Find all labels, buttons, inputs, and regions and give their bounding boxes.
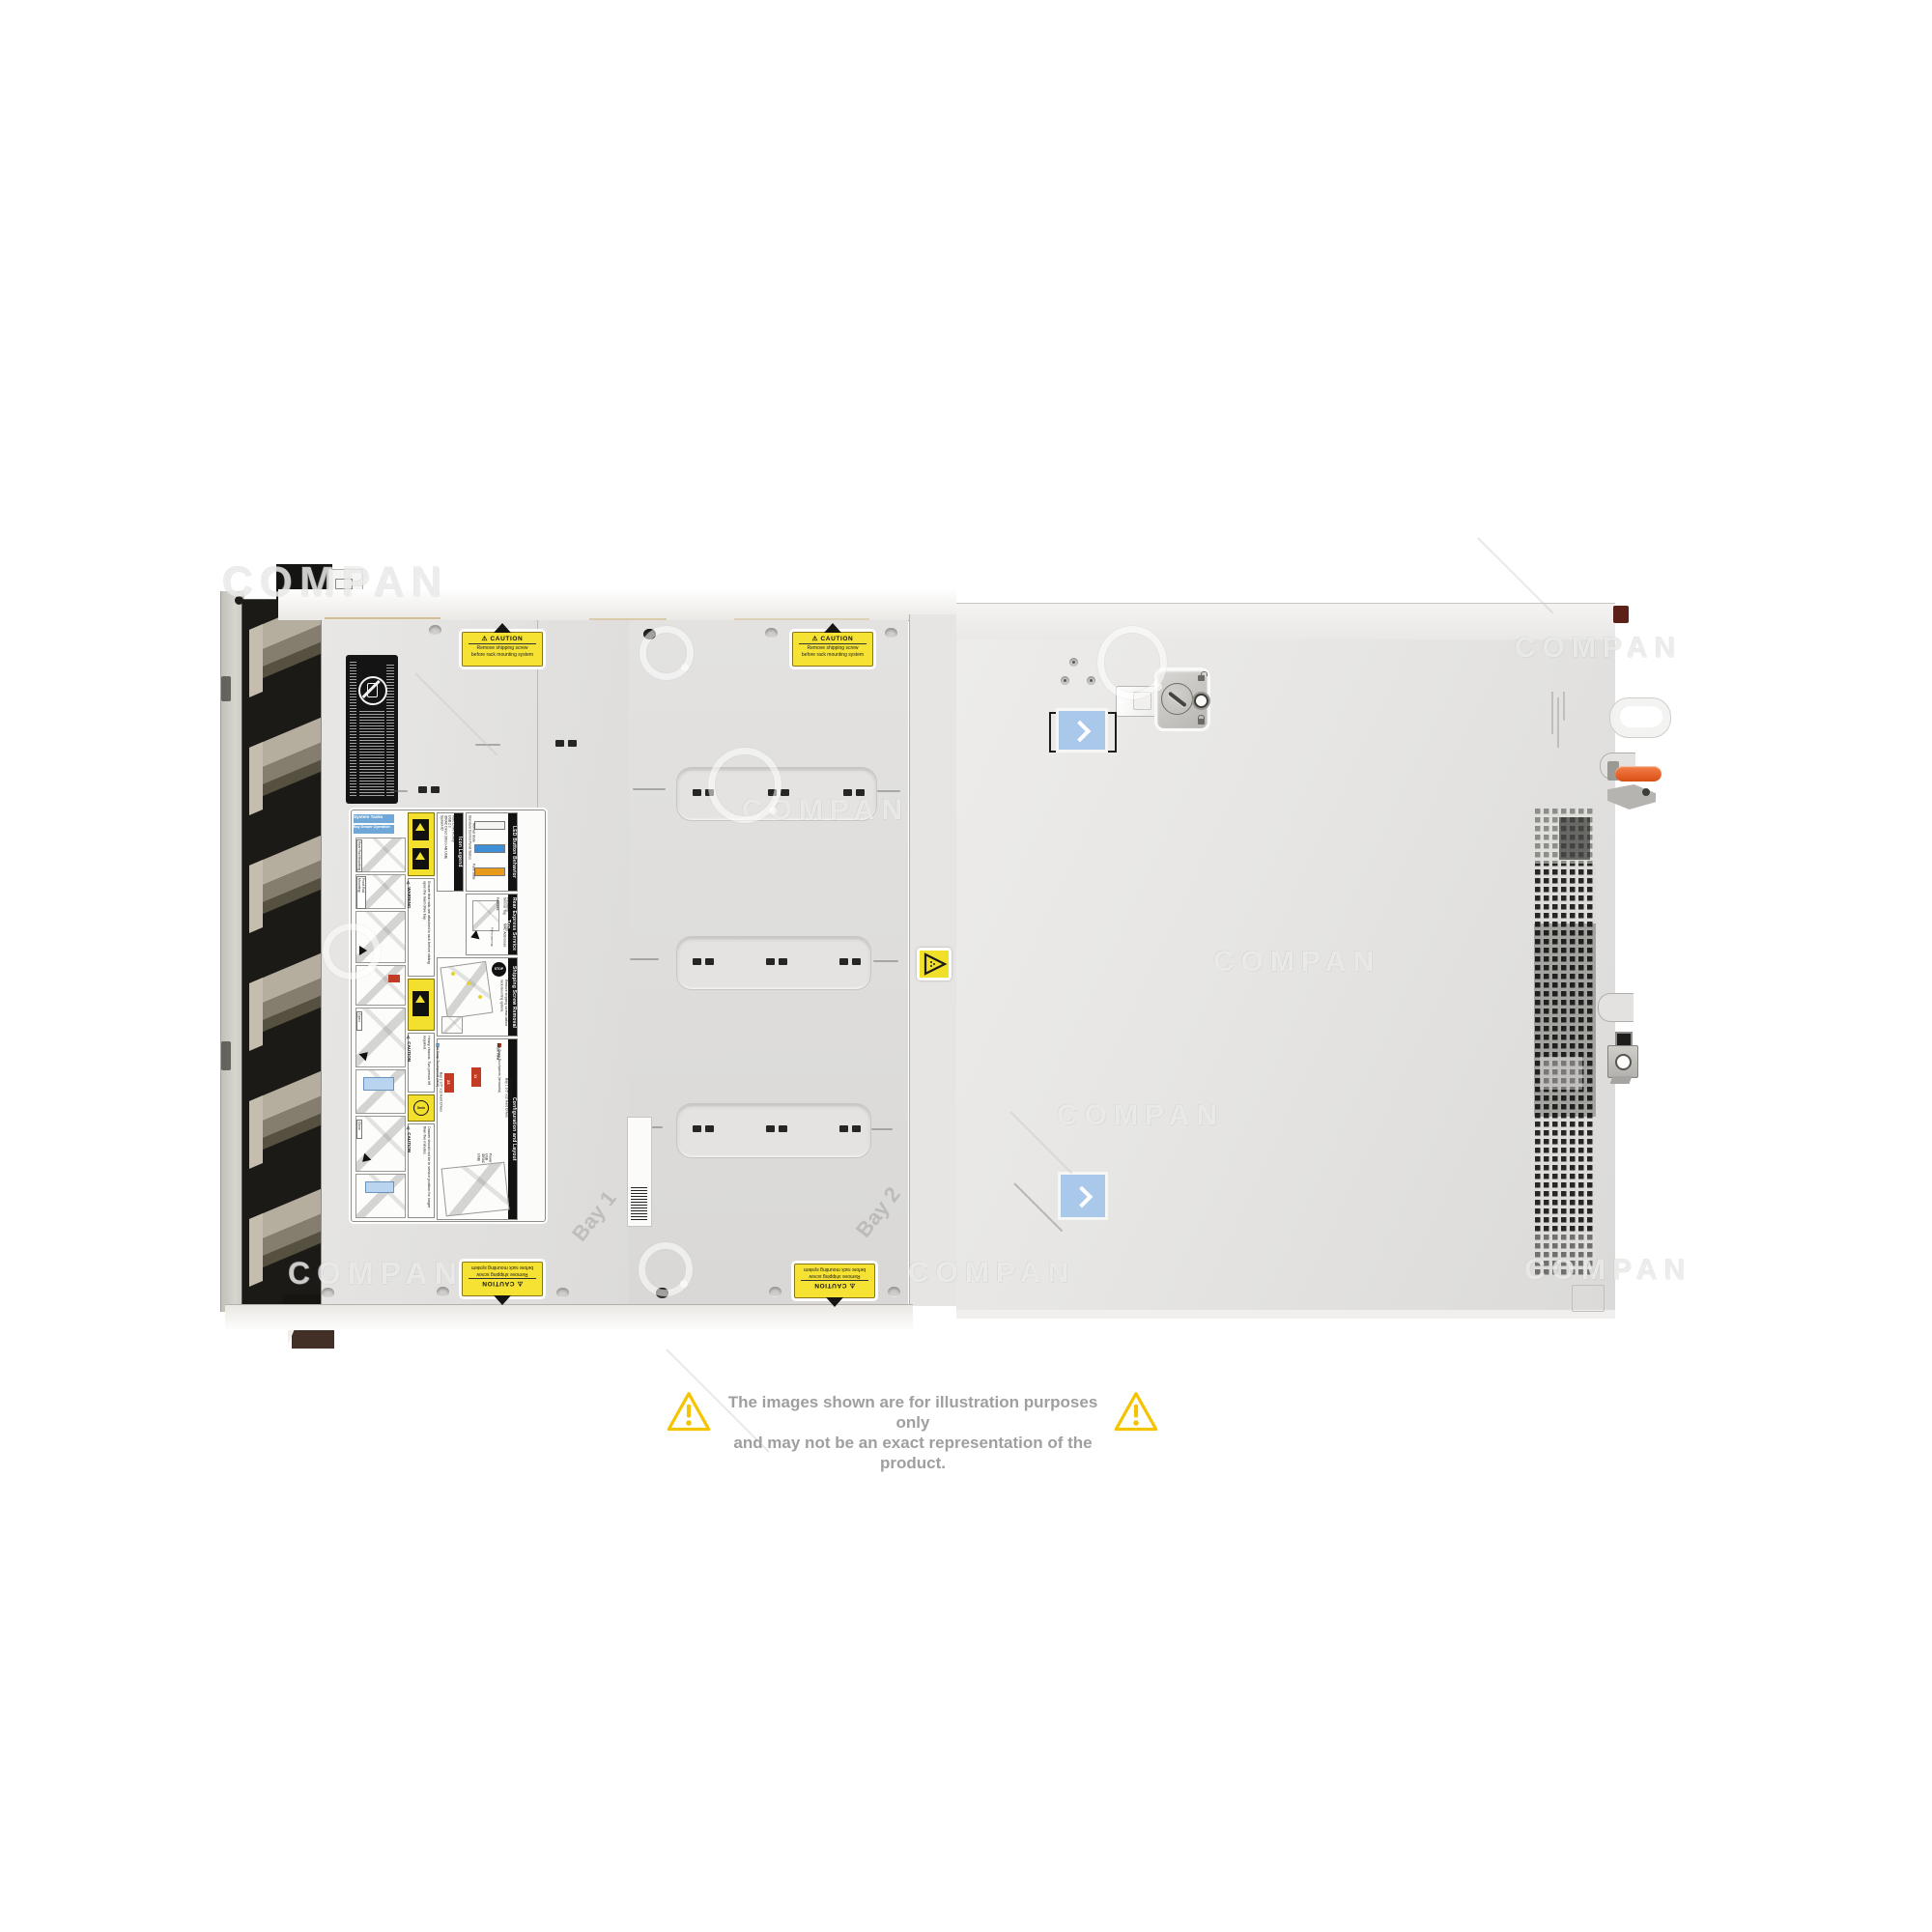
latch-plate (1607, 1045, 1638, 1078)
screw-hole (769, 1287, 781, 1297)
diagram-chassis-screws (440, 961, 493, 1019)
shipping-title: Shipping Screw Removal (508, 958, 517, 1036)
cover-keylock-plate (1157, 670, 1207, 728)
screw-hole (765, 628, 778, 639)
five-min-sticker: 5min (408, 1094, 435, 1122)
chevron-right-icon (1071, 1186, 1094, 1208)
caution-line1: Remove shipping screw (463, 1271, 542, 1278)
caution-drawer-box: ⚠ CAUTION Drawer should not be in servic… (408, 1123, 435, 1218)
light-bar-label: System ID/Status Light Bar (508, 1078, 512, 1161)
warning-triangle-icon (1114, 1389, 1158, 1435)
shipping-screw-box: Shipping Screw Removal STOP Remove shipp… (437, 957, 518, 1037)
feature-item: Express Service Code (505, 923, 514, 952)
bay2-label: Bay 2 3.5" x12 Hard Drives (439, 1072, 442, 1161)
caution-sticker-bottom-left: ⚠ CAUTION Remove shipping screw before r… (462, 1262, 543, 1296)
diagram-blue-drawer-fill (365, 1181, 394, 1193)
cover-release-slider (1116, 686, 1156, 717)
caution-line2: before rack mounting system (793, 652, 872, 659)
caution-title: ⚠ CAUTION (801, 1280, 868, 1290)
service-info-label: System Tasks Bay Drawer Operation Rear R… (351, 810, 546, 1222)
caution-title: ⚠ CAUTION (406, 1126, 411, 1152)
bracket-mark-icon (1108, 712, 1117, 753)
pointer-arrow-icon (824, 623, 841, 633)
screw-hole (437, 1287, 449, 1297)
scratch-mark (475, 744, 500, 746)
rail-smudge (221, 676, 231, 701)
legend-item: Hard Drive Activity (451, 815, 455, 887)
screw-hole (885, 628, 897, 639)
regulatory-fine-print (386, 665, 394, 796)
yellow-triangle-sticker (917, 948, 952, 980)
caution-text: Heavy chassis. Two person lift required. (417, 1036, 431, 1088)
caution-title: ⚠ CAUTION (406, 1036, 411, 1062)
rivet (1061, 676, 1069, 685)
embossed-mark (1557, 697, 1559, 748)
regulatory-fine-print (359, 709, 384, 796)
step-label: Front Rail Mounting (356, 876, 366, 909)
unlock-icon (1198, 675, 1205, 681)
pointer-arrow-icon (826, 1297, 843, 1307)
bay2-drive-grid: 121314151617181920212223 (443, 1072, 476, 1157)
caution-title: ⚠ CAUTION (469, 635, 536, 644)
regulatory-label (346, 655, 398, 804)
caution-text: Drawer should not be in service position… (417, 1126, 431, 1213)
warning-title: ⚠ WARNING (406, 881, 411, 908)
disclaimer-line2: and may not be an exact representation o… (715, 1433, 1111, 1473)
bottom-edge-lip-right (956, 1310, 1615, 1319)
screw-hole (888, 1287, 900, 1297)
stop-icon: STOP (492, 962, 506, 977)
step-label: Rear Rail Mounting (356, 839, 362, 872)
disclaimer-line1: The images shown are for illustration pu… (715, 1392, 1111, 1433)
screw-hole (429, 625, 441, 636)
caution-sticker-top-mid: ⚠ CAUTION Remove shipping screw before r… (792, 632, 873, 667)
product-photo-canvas: ⚠ CAUTION Remove shipping screw before r… (0, 0, 1932, 1932)
caution-line1: Remove shipping screw (795, 1273, 874, 1280)
recessed-handle-row (676, 936, 871, 990)
rivet (1087, 676, 1095, 685)
edge-detail-square (1572, 1285, 1605, 1312)
latch-foot (1610, 1076, 1633, 1084)
diagram-drawer-blue (355, 1069, 406, 1114)
arrow-icon (359, 946, 367, 955)
scratch-mark (871, 1128, 893, 1130)
diagram-drawer-iso (441, 1162, 510, 1217)
clock-5min-icon: 5min (413, 1100, 429, 1116)
chevron-right-icon (1069, 721, 1092, 743)
caution-heavy-box: ⚠ CAUTION Heavy chassis. Two person lift… (408, 1033, 435, 1093)
orange-release-lever (1615, 766, 1662, 781)
top-seam-tanline (325, 617, 440, 619)
barcode-sticker (627, 1117, 652, 1227)
caution-title: ⚠ CAUTION (799, 635, 867, 644)
recessed-handle-row (676, 1103, 871, 1158)
led-bar-fault (474, 867, 505, 876)
warning-box: ⚠ WARNING Ensure that rails are attached… (408, 878, 435, 977)
led-fault-label: Fault State (471, 864, 475, 889)
scratch-mark (633, 788, 666, 790)
screw-hole (556, 1288, 569, 1298)
led-title: LED Button Behavior (508, 813, 517, 891)
step-label: Close (356, 1120, 362, 1139)
rail-smudge (221, 1041, 231, 1070)
front-handle-chevrons (241, 599, 323, 1308)
warning-text: Ensure that rails are attached to rack b… (417, 881, 431, 972)
rear-tag-box: Rear Express Service Tag Features: Servi… (466, 894, 518, 955)
lock-icon (1198, 719, 1205, 724)
screw-hole (322, 1288, 334, 1298)
rear-vent-grid (1534, 808, 1596, 1277)
screw-hole (656, 1288, 668, 1298)
screw-dot (451, 972, 455, 976)
warning-triangle-icon (667, 1389, 711, 1435)
caution-line2: before rack mounting system (463, 1264, 542, 1271)
diagram-keypad (355, 965, 406, 1006)
caution-line2: before rack mounting system (795, 1266, 874, 1273)
embossed-mark (1551, 692, 1553, 734)
embossed-mark (1563, 692, 1565, 721)
diagram-screwdriver (441, 1016, 463, 1034)
shipping-text: Remove shipping screws before rack mount… (499, 980, 508, 1032)
bay-drawer-header: Bay Drawer Operation (354, 825, 394, 834)
disclaimer-text: The images shown are for illustration pu… (715, 1392, 1111, 1473)
scratch-mark (873, 960, 898, 962)
arrow-icon (469, 930, 480, 942)
top-edge-screw (235, 596, 243, 605)
icon-legend-box: Icon Legend System ID iDRAC Direct (Micr… (437, 812, 464, 892)
step-label: Open (356, 1011, 362, 1031)
rear-tab (1613, 606, 1629, 623)
caution-line2: before rack mounting system (463, 652, 542, 659)
edge-notch (1598, 993, 1634, 1022)
screw-dot (467, 981, 470, 985)
bracket-mark-icon (1049, 712, 1058, 753)
screw-hole (643, 629, 656, 639)
led-bar-blue (474, 844, 505, 853)
screw-dot (478, 995, 482, 999)
pointer-arrow-icon (494, 1295, 511, 1305)
bottom-edge-lip (225, 1304, 913, 1330)
blue-latch-sticker-bottom (1061, 1175, 1105, 1217)
blue-latch-sticker-top (1059, 711, 1105, 750)
clip-bolt (1642, 788, 1650, 796)
scratch-mark (630, 958, 659, 960)
release-handle (1609, 697, 1671, 738)
recessed-handle-row (676, 767, 877, 821)
lock-dial-icon (1161, 683, 1193, 715)
system-tasks-header: System Tasks (354, 814, 394, 823)
no-screwdriver-icon (358, 676, 387, 705)
caution-sticker-top-left: ⚠ CAUTION Remove shipping screw before r… (462, 632, 543, 667)
features-label: Features: (496, 897, 499, 911)
diagram-final (355, 1174, 406, 1218)
rivet (1069, 658, 1078, 667)
right-cover-bezel (956, 603, 1615, 642)
pinch-hazard-sticker (408, 979, 435, 1031)
pinch-hazard-sticker (408, 812, 435, 876)
diagram-rear-rail (355, 838, 406, 872)
pull-tag-note: Pull to open tag (490, 927, 494, 952)
config-layout-box: Configuration and Layout Hot Swap Touchp… (437, 1038, 518, 1220)
caution-sticker-bottom-mid: ⚠ CAUTION Remove shipping screw before r… (794, 1264, 875, 1298)
pointer-arrow-icon (494, 623, 511, 633)
scratch-mark (877, 790, 900, 792)
keyhole-icon (1194, 694, 1208, 708)
led-bar-normal (474, 821, 505, 830)
diagram-blue-drawer-fill (363, 1077, 394, 1091)
led-button-box: LED Button Behavior Standard Control Pan… (466, 812, 518, 892)
diagram-red-cell (388, 975, 400, 982)
regulatory-fine-print (350, 661, 356, 796)
caution-title: ⚠ CAUTION (469, 1278, 536, 1288)
led-normal-label: Normal State (471, 823, 475, 862)
scratch-mark (390, 790, 408, 792)
